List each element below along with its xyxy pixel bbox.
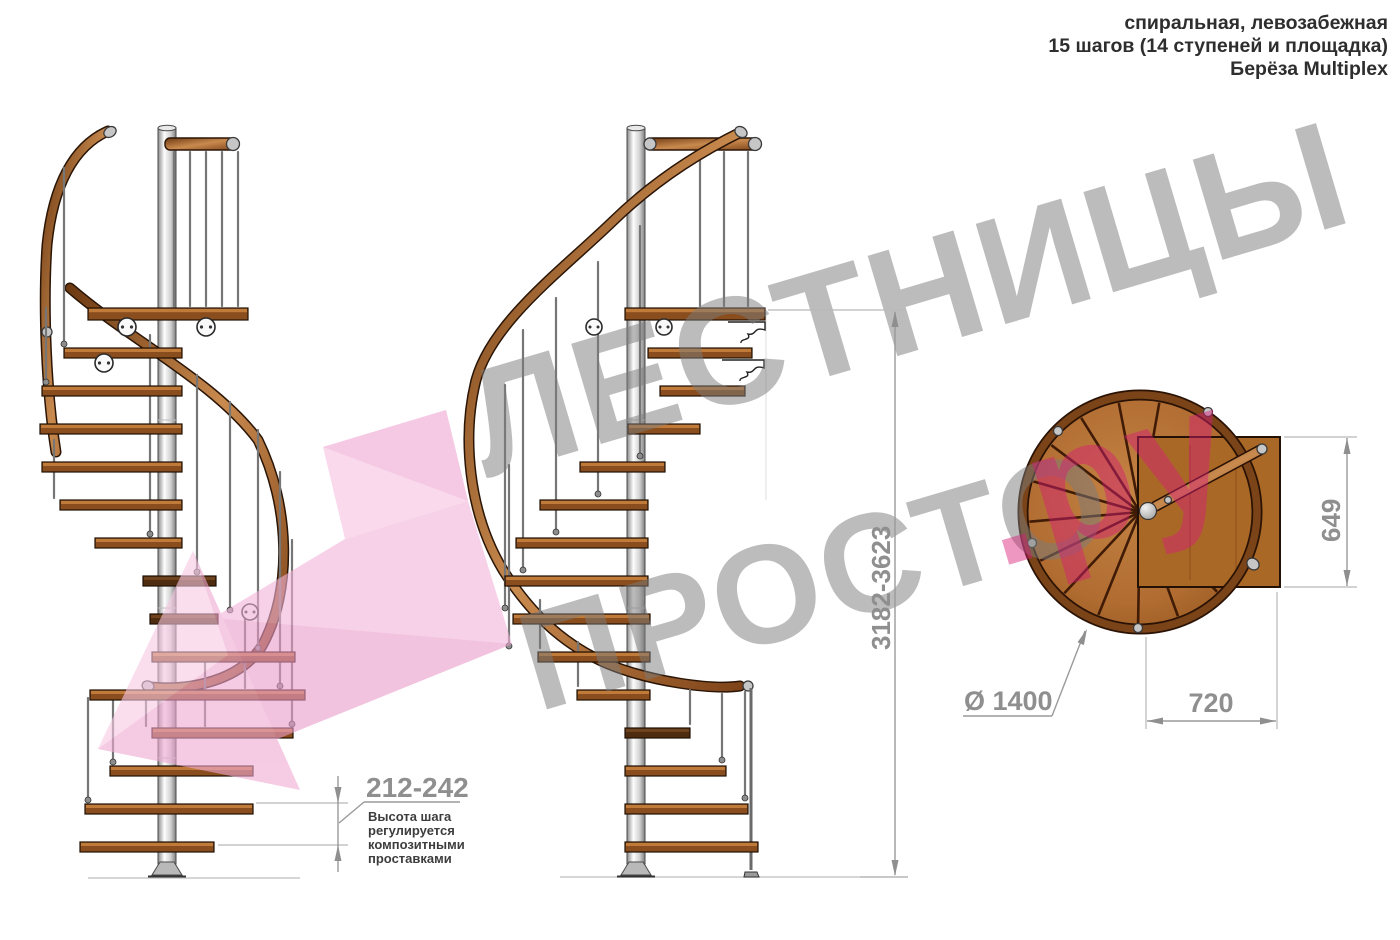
dimension-diameter: Ø 1400 — [963, 629, 1087, 716]
pole-base-flange — [152, 862, 182, 875]
landing-depth-label: 649 — [1316, 499, 1346, 542]
railing-end-cap — [227, 138, 240, 151]
staircase-drawing: ЛЕСТНИЦЫ ПРОСТО .ру 3182-3623 — [0, 0, 1400, 940]
note-line: композитными — [368, 837, 465, 852]
pole-base-flange — [621, 862, 651, 875]
drawing-sheet: ЛЕСТНИЦЫ ПРОСТО .ру 3182-3623 — [0, 0, 1400, 940]
note-line: регулируется — [368, 823, 455, 838]
dimension-step-height: 212-242 Высота шага регулируется компози… — [218, 772, 469, 872]
step-height-note: Высота шага регулируется композитными пр… — [368, 809, 465, 866]
railing-end-cap — [644, 138, 656, 150]
watermark: ЛЕСТНИЦЫ ПРОСТО .ру — [447, 88, 1368, 741]
dimension-landing-depth: 649 — [1284, 437, 1357, 587]
note-line: проставками — [368, 851, 452, 866]
header: спиральная, левозабежная 15 шагов (14 ст… — [1048, 12, 1388, 80]
railing-end-cap — [749, 138, 762, 151]
rail-end-cap — [1257, 444, 1267, 454]
header-line-material: Берёза Multiplex — [1230, 58, 1388, 80]
header-line-steps: 15 шагов (14 ступеней и площадка) — [1048, 35, 1388, 57]
total-height-label: 3182-3623 — [866, 526, 896, 650]
step-height-label: 212-242 — [366, 772, 469, 803]
balusters-platform-left — [174, 152, 238, 306]
header-line-type: спиральная, левозабежная — [1124, 12, 1388, 34]
diameter-label: Ø 1400 — [964, 686, 1053, 716]
landing-width-label: 720 — [1188, 688, 1233, 718]
note-line: Высота шага — [368, 809, 452, 824]
platform-step — [88, 308, 248, 320]
